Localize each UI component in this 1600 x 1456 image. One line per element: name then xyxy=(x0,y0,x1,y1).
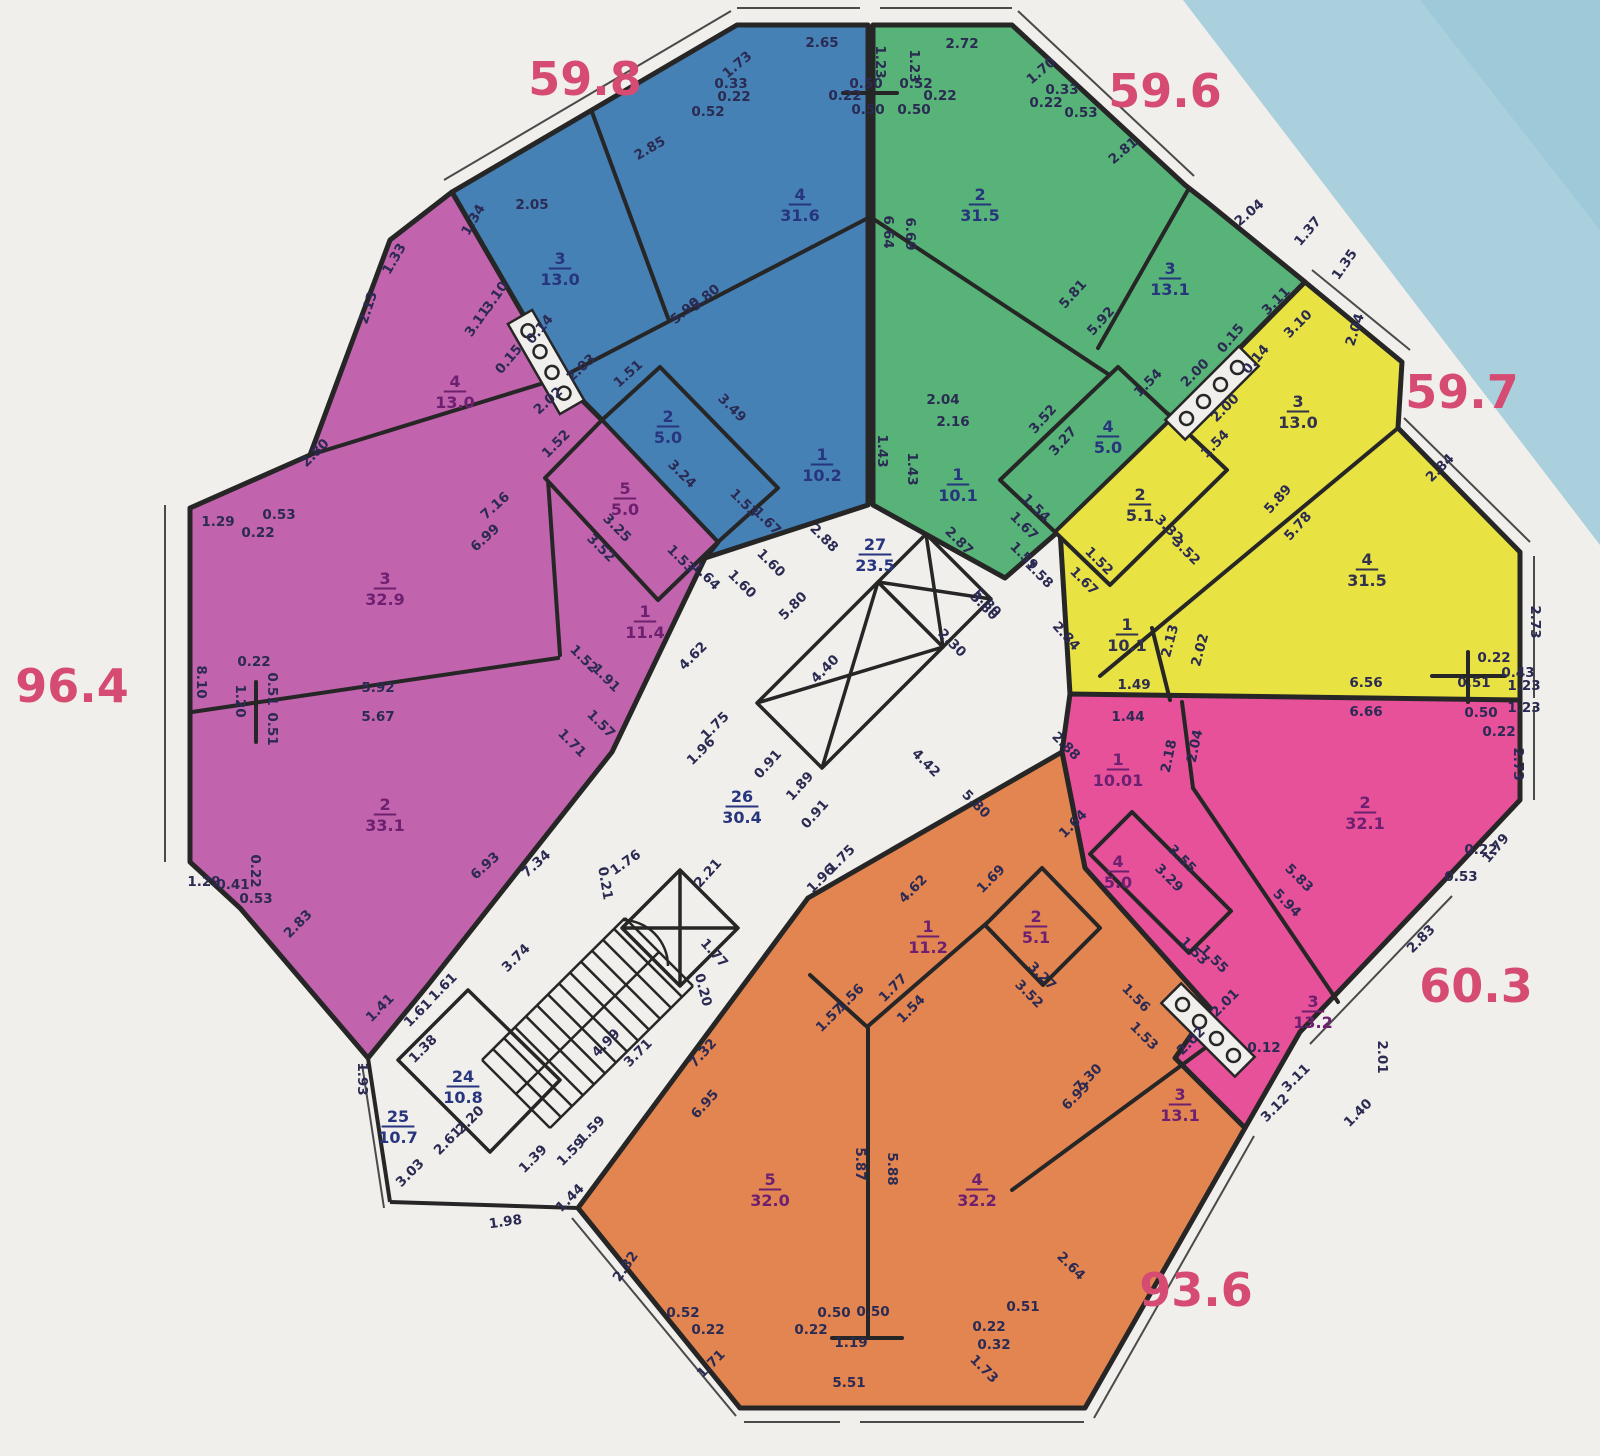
room-number: 27 xyxy=(864,535,886,554)
room-number: 4 xyxy=(1112,852,1123,871)
room-area: 31.5 xyxy=(1347,571,1386,590)
room-label-core-27: 2723.5 xyxy=(855,535,894,575)
room-area: 31.5 xyxy=(960,206,999,225)
dim-label: 6.66 xyxy=(1349,704,1382,720)
dim-label: 1.20 xyxy=(232,684,248,717)
dim-label: 1.49 xyxy=(1117,677,1150,693)
dim-label: 1.37 xyxy=(1291,214,1325,250)
dim-label: 0.50 xyxy=(1464,705,1497,721)
room-number: 3 xyxy=(1307,992,1318,1011)
room-number: 2 xyxy=(974,185,985,204)
room-area: 32.1 xyxy=(1345,814,1384,833)
room-area: 5.1 xyxy=(1126,506,1154,525)
room-area: 33.1 xyxy=(365,816,404,835)
dim-label: 5.92 xyxy=(361,680,394,696)
dim-label: 4.42 xyxy=(908,746,943,781)
total-area-pink: 60.3 xyxy=(1419,959,1533,1013)
room-area: 13.2 xyxy=(1293,1013,1332,1032)
dim-label: 0.53 xyxy=(1064,105,1097,121)
dim-label: 2.83 xyxy=(1404,922,1439,957)
dim-label: 1.98 xyxy=(488,1212,523,1232)
room-label-core-25: 2510.7 xyxy=(378,1107,417,1147)
dim-label: 1.19 xyxy=(834,1335,867,1351)
dim-label: 2.88 xyxy=(806,521,841,556)
room-area: 13.1 xyxy=(1160,1106,1199,1125)
room-area: 5.0 xyxy=(654,428,682,447)
room-number: 1 xyxy=(952,465,963,484)
dim-label: 1.93 xyxy=(354,1062,370,1095)
room-area: 5.0 xyxy=(1094,438,1122,457)
dim-label: 0.22 xyxy=(247,854,263,887)
room-area: 30.4 xyxy=(722,808,761,827)
room-number: 24 xyxy=(452,1067,474,1086)
dim-label: 2.01 xyxy=(1374,1040,1390,1073)
dim-label: 0.20 xyxy=(691,972,715,1008)
floor-plan: 2.651.231.232.720.500.220.500.520.220.50… xyxy=(0,0,1600,1456)
dim-label: 1.23 xyxy=(1507,678,1540,694)
dim-label: 2.73 xyxy=(1527,605,1543,638)
dim-label: 4.62 xyxy=(676,639,711,674)
dim-label: 0.50 xyxy=(851,102,884,118)
room-number: 4 xyxy=(971,1170,982,1189)
room-area: 32.2 xyxy=(957,1191,996,1210)
dim-label: 1.60 xyxy=(753,546,788,581)
room-number: 3 xyxy=(1292,392,1303,411)
dim-label: 0.22 xyxy=(972,1319,1005,1335)
dim-label: 1.60 xyxy=(724,567,759,602)
dim-label: 0.52 xyxy=(666,1305,699,1321)
dim-label: 0.53 xyxy=(239,891,272,907)
room-number: 3 xyxy=(1164,259,1175,278)
room-number: 25 xyxy=(387,1107,409,1126)
room-area: 32.9 xyxy=(365,590,404,609)
dim-label: 2.73 xyxy=(1510,747,1526,780)
room-number: 4 xyxy=(794,185,805,204)
dim-label: 0.22 xyxy=(241,525,274,541)
dim-label: 0.51 xyxy=(264,712,280,745)
room-area: 13.0 xyxy=(435,393,474,412)
room-area: 13.0 xyxy=(540,270,579,289)
dim-label: 0.22 xyxy=(794,1322,827,1338)
dim-label: 0.22 xyxy=(1482,724,1515,740)
room-number: 2 xyxy=(379,795,390,814)
room-area: 11.2 xyxy=(908,938,947,957)
dim-label: 5.88 xyxy=(884,1152,900,1185)
room-number: 5 xyxy=(619,479,630,498)
dim-label: 1.35 xyxy=(1329,246,1361,282)
room-number: 3 xyxy=(1174,1085,1185,1104)
dim-label: 5.51 xyxy=(832,1375,865,1391)
room-number: 1 xyxy=(922,917,933,936)
total-area-orange: 93.6 xyxy=(1139,1263,1253,1317)
dim-label: 2.04 xyxy=(926,392,959,408)
room-number: 3 xyxy=(379,569,390,588)
dim-label: 2.05 xyxy=(515,197,548,213)
room-number: 2 xyxy=(1030,907,1041,926)
dim-label: 5.67 xyxy=(361,709,394,725)
dim-label: 1.39 xyxy=(516,1142,551,1177)
dim-label: 3.03 xyxy=(393,1156,428,1191)
floor-plan-page: 2.651.231.232.720.500.220.500.520.220.50… xyxy=(0,0,1600,1456)
dim-label: 0.22 xyxy=(691,1322,724,1338)
dim-label: 1.58 xyxy=(1021,557,1056,592)
room-area: 32.0 xyxy=(750,1191,789,1210)
room-area: 11.4 xyxy=(625,623,664,642)
dim-label: 2.72 xyxy=(945,36,978,52)
room-area: 5.0 xyxy=(1104,873,1132,892)
room-area: 10.2 xyxy=(802,466,841,485)
dim-label: 5.87 xyxy=(852,1147,868,1180)
dim-label: 0.91 xyxy=(751,747,785,782)
dim-label: 2.16 xyxy=(936,414,969,430)
room-area: 10.01 xyxy=(1093,771,1144,790)
dim-label: 1.29 xyxy=(201,514,234,530)
dim-label: 6.64 xyxy=(880,215,896,248)
room-area: 13.1 xyxy=(1150,280,1189,299)
room-label-core-26: 2630.4 xyxy=(722,787,761,827)
dim-label: 0.50 xyxy=(817,1305,850,1321)
room-area: 23.5 xyxy=(855,556,894,575)
room-area: 13.0 xyxy=(1278,413,1317,432)
dim-label: 0.22 xyxy=(1477,650,1510,666)
dim-label: 0.53 xyxy=(262,507,295,523)
dim-label: 3.71 xyxy=(621,1036,656,1071)
total-area-yellow: 59.7 xyxy=(1405,365,1519,419)
dim-label: 0.51 xyxy=(1457,675,1490,691)
room-number: 2 xyxy=(1359,793,1370,812)
dim-label: 0.53 xyxy=(1444,869,1477,885)
dim-label: 0.22 xyxy=(1029,95,1062,111)
room-number: 1 xyxy=(816,445,827,464)
dim-label: 0.22 xyxy=(717,89,750,105)
room-area: 10.1 xyxy=(938,486,977,505)
dim-label: 0.32 xyxy=(977,1337,1010,1353)
dim-label: 8.10 xyxy=(193,665,209,698)
room-number: 26 xyxy=(731,787,753,806)
dim-label: 2.65 xyxy=(805,35,838,51)
total-area-green: 59.6 xyxy=(1108,64,1222,118)
room-number: 5 xyxy=(764,1170,775,1189)
room-number: 4 xyxy=(449,372,460,391)
room-area: 10.1 xyxy=(1107,636,1146,655)
total-area-blue: 59.8 xyxy=(528,52,642,106)
dim-label: 0.51 xyxy=(264,672,280,705)
dim-label: 1.43 xyxy=(904,452,920,485)
dim-label: 2.04 xyxy=(1232,196,1268,230)
dim-label: 1.43 xyxy=(874,434,890,467)
dim-label: 1.44 xyxy=(1111,709,1144,725)
dim-label: 0.52 xyxy=(691,104,724,120)
room-number: 1 xyxy=(1112,750,1123,769)
dim-label: 1.40 xyxy=(1341,1096,1376,1131)
dim-label: 0.22 xyxy=(237,654,270,670)
dim-label: 1.59 xyxy=(574,1113,609,1148)
room-number: 1 xyxy=(639,602,650,621)
room-area: 10.8 xyxy=(443,1088,482,1107)
dim-label: 0.91 xyxy=(798,797,832,832)
dim-label: 6.69 xyxy=(902,217,918,250)
room-area: 10.7 xyxy=(378,1128,417,1147)
dim-label: 1.23 xyxy=(1507,700,1540,716)
dim-label: 3.74 xyxy=(499,941,534,976)
dim-label: 3.11 xyxy=(1279,1061,1314,1096)
dim-label: 1.23 xyxy=(872,45,888,78)
room-number: 2 xyxy=(662,407,673,426)
dim-label: 5.80 xyxy=(776,589,811,624)
core-wall xyxy=(390,1202,578,1208)
dim-label: 2.21 xyxy=(691,856,725,891)
room-number: 1 xyxy=(1121,615,1132,634)
dim-label: 0.50 xyxy=(856,1304,889,1320)
room-number: 2 xyxy=(1134,485,1145,504)
room-number: 3 xyxy=(554,249,565,268)
total-area-purple: 96.4 xyxy=(15,659,129,713)
room-area: 5.1 xyxy=(1022,928,1050,947)
dim-label: 1.89 xyxy=(783,769,817,804)
room-area: 31.6 xyxy=(780,206,819,225)
room-number: 4 xyxy=(1361,550,1372,569)
room-number: 4 xyxy=(1102,417,1113,436)
dim-label: 0.51 xyxy=(1006,1299,1039,1315)
dim-label: 0.12 xyxy=(1247,1040,1280,1056)
dim-label: 6.56 xyxy=(1349,675,1382,691)
room-area: 5.0 xyxy=(611,500,639,519)
dim-label: 0.50 xyxy=(897,102,930,118)
dim-label: 1.76 xyxy=(607,847,643,879)
